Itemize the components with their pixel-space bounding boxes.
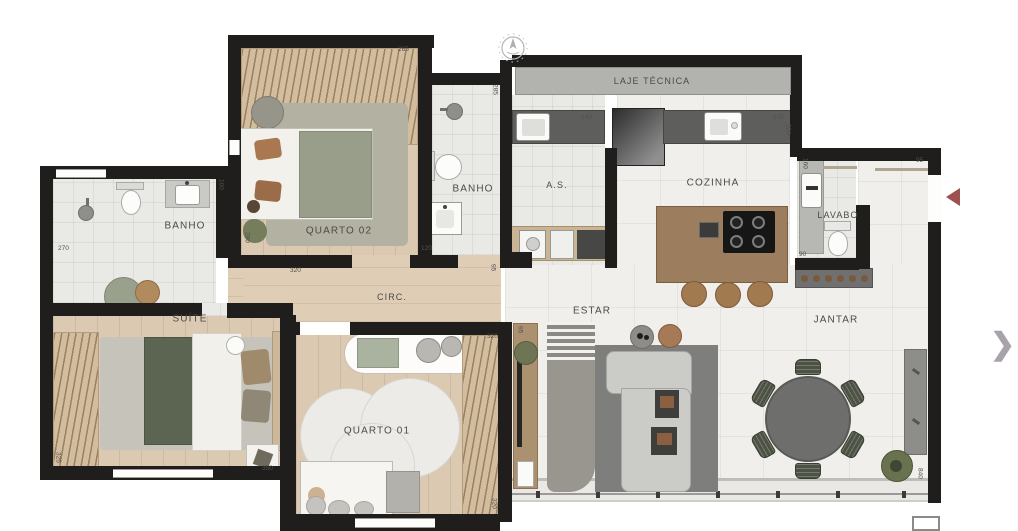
wall [512, 55, 802, 67]
plant-core [890, 460, 902, 472]
coat-hook [813, 275, 820, 282]
decor-item [912, 418, 920, 425]
bar-stool [681, 281, 707, 307]
balcony-post [836, 491, 840, 498]
balcony-post [716, 491, 720, 498]
dim-as-counter: 140 [581, 115, 592, 122]
quarto02-pillow [254, 137, 283, 160]
next-arrow-icon[interactable]: ❯ [990, 330, 1015, 360]
sink-banho-social [427, 202, 462, 235]
estar-runner-stripes [547, 322, 595, 360]
tray-item [660, 396, 674, 408]
wall [418, 35, 432, 267]
toilet-tank [824, 221, 851, 231]
wall [928, 161, 941, 175]
compass-rose-icon [495, 30, 531, 66]
room-label-laje-tecnica: LAJE TÉCNICA [614, 76, 691, 86]
quarto01-blanket [386, 471, 420, 513]
sink-basin [710, 119, 728, 135]
entrance-marker-arrow-icon [946, 188, 960, 206]
faucet-icon [806, 186, 818, 190]
shower-arm [86, 198, 89, 206]
wall [40, 166, 53, 480]
coat-hook [861, 275, 868, 282]
console-box [517, 461, 534, 487]
room-label-banho-suite: BANHO [164, 221, 205, 232]
sink-basin [436, 210, 454, 228]
room-label-banho-social: BANHO [452, 184, 493, 195]
wall [290, 322, 300, 335]
decor-item [912, 368, 920, 375]
quarto01-cushion [306, 496, 326, 516]
entry-shelf [875, 168, 931, 171]
tv-icon [517, 357, 522, 447]
suite-wardrobe [53, 332, 99, 469]
entry-shelf [823, 166, 857, 169]
jantar-plant [881, 450, 913, 482]
decor-item [637, 333, 643, 339]
dim-quarto01-height: 320 [490, 498, 497, 509]
dim-lavabo-width: 90 [799, 252, 806, 259]
quarto02-pot [247, 200, 260, 213]
faucet-icon [185, 181, 189, 185]
window [355, 518, 435, 528]
dim-quarto02-left: 280 [243, 232, 250, 243]
dim-banho-social-width: 120 [421, 246, 432, 253]
sofa-tray [651, 427, 677, 455]
coat-hook [837, 275, 844, 282]
lavabo-sink [801, 173, 822, 208]
coat-hook [825, 275, 832, 282]
dim-banho-social-height: 285 [491, 84, 498, 95]
dim-entry-width: 95 [916, 158, 923, 165]
shower-head-icon [78, 205, 94, 221]
wall [410, 255, 458, 268]
dim-suite-width: 350 [262, 466, 273, 473]
estar-plant [514, 341, 538, 365]
balcony-post [596, 491, 600, 498]
wall [928, 222, 941, 503]
balcony-edge [505, 500, 929, 502]
suite-pouf-small [135, 280, 160, 305]
as-tank-sink [516, 113, 550, 141]
dim-jantar-height: 840 [916, 468, 923, 479]
cozinha-sink [704, 112, 742, 141]
quarto02-pouf [251, 96, 284, 129]
suite-pillow [240, 349, 271, 386]
sink-drain [731, 122, 738, 129]
dining-table [765, 376, 851, 462]
side-table [630, 325, 654, 349]
toilet-bowl [121, 190, 141, 215]
room-label-quarto02: QUARTO 02 [306, 226, 372, 237]
room-label-suite: SUÍTE [173, 314, 208, 325]
toilet-tank [116, 182, 144, 190]
room-label-lavabo: LAVABO [817, 210, 858, 220]
quarto01-chair [416, 338, 441, 363]
cooktop-icon [723, 211, 775, 253]
coat-hook [801, 275, 808, 282]
faucet-icon [443, 205, 447, 209]
wall [500, 60, 512, 267]
toilet-bowl [828, 231, 848, 256]
side-table [658, 324, 682, 348]
dim-cozinha-depth: 220 [784, 124, 791, 135]
fridge-icon [612, 108, 665, 166]
dim-suite-height: 325 [54, 452, 61, 463]
wall [795, 258, 859, 270]
suite-pillow [241, 389, 272, 423]
sink-counter-banho-suite [165, 180, 210, 208]
balcony-post [536, 491, 540, 498]
keyplan-box [912, 516, 940, 531]
wall [500, 252, 532, 268]
quarto02-bed-blanket [299, 131, 372, 218]
quarto01-desk-mat [357, 338, 399, 368]
burner [752, 216, 765, 229]
dining-chair [795, 359, 821, 375]
sofa-tray [655, 390, 679, 418]
room-label-area-servico: A.S. [546, 180, 567, 190]
window [113, 469, 213, 478]
room-label-circulacao: CIRC. [377, 292, 407, 302]
wall [350, 322, 510, 335]
washer-door [526, 237, 540, 251]
balcony-post [902, 491, 906, 498]
quarto01-wardrobe [462, 335, 499, 515]
wall [605, 148, 617, 268]
quarto02-pillow [254, 180, 282, 203]
suite-lamp [226, 336, 245, 355]
as-appliance [550, 230, 574, 259]
wall [280, 315, 296, 531]
as-dark-appliance [577, 230, 605, 259]
dim-quarto02-bottom: 320 [290, 268, 301, 275]
floorplan-canvas: QUARTO 02 BANHO BANHO LAJE TÉCNICA A.S. … [0, 0, 1018, 531]
window [229, 140, 240, 155]
sink-basin [175, 185, 200, 205]
balcony-post [776, 491, 780, 498]
dim-quarto01-width: 320 [487, 334, 498, 341]
entry-closet [795, 268, 873, 288]
burner [730, 235, 743, 248]
dim-quarto02-width: 265 [398, 47, 409, 54]
jantar-buffet [904, 349, 927, 455]
wall [790, 55, 802, 157]
bar-stool [715, 282, 741, 308]
sink-basin [522, 119, 545, 136]
room-label-estar: ESTAR [573, 306, 611, 317]
dim-banho-social-corner: 95 [489, 264, 496, 271]
wall [498, 322, 512, 522]
decor-item [644, 335, 649, 340]
quarto01-chair [441, 336, 462, 357]
dim-cozinha-counter: 275 [773, 115, 784, 122]
shower-arm [440, 108, 448, 111]
suite-bed-blanket [144, 337, 194, 445]
window [56, 169, 106, 178]
shower-head-icon [446, 103, 463, 120]
island-sink [699, 222, 719, 238]
room-label-quarto01: QUARTO 01 [344, 426, 410, 437]
burner [730, 216, 743, 229]
dining-chair [795, 463, 821, 479]
coat-hook [849, 275, 856, 282]
room-label-cozinha: COZINHA [687, 178, 740, 189]
toilet-bowl [435, 154, 462, 180]
bar-stool [747, 281, 773, 307]
dim-estar-wall: 95 [516, 326, 523, 333]
burner [752, 235, 765, 248]
dim-lavabo-height: 160 [801, 158, 808, 169]
dim-banho-suite-counter: 100 [217, 179, 224, 190]
room-label-jantar: JANTAR [814, 315, 859, 326]
entry-door-opening [928, 175, 941, 222]
balcony-post [656, 491, 660, 498]
tray-item [657, 433, 672, 445]
dim-banho-suite-width: 270 [58, 246, 69, 253]
kitchen-island [656, 206, 788, 283]
